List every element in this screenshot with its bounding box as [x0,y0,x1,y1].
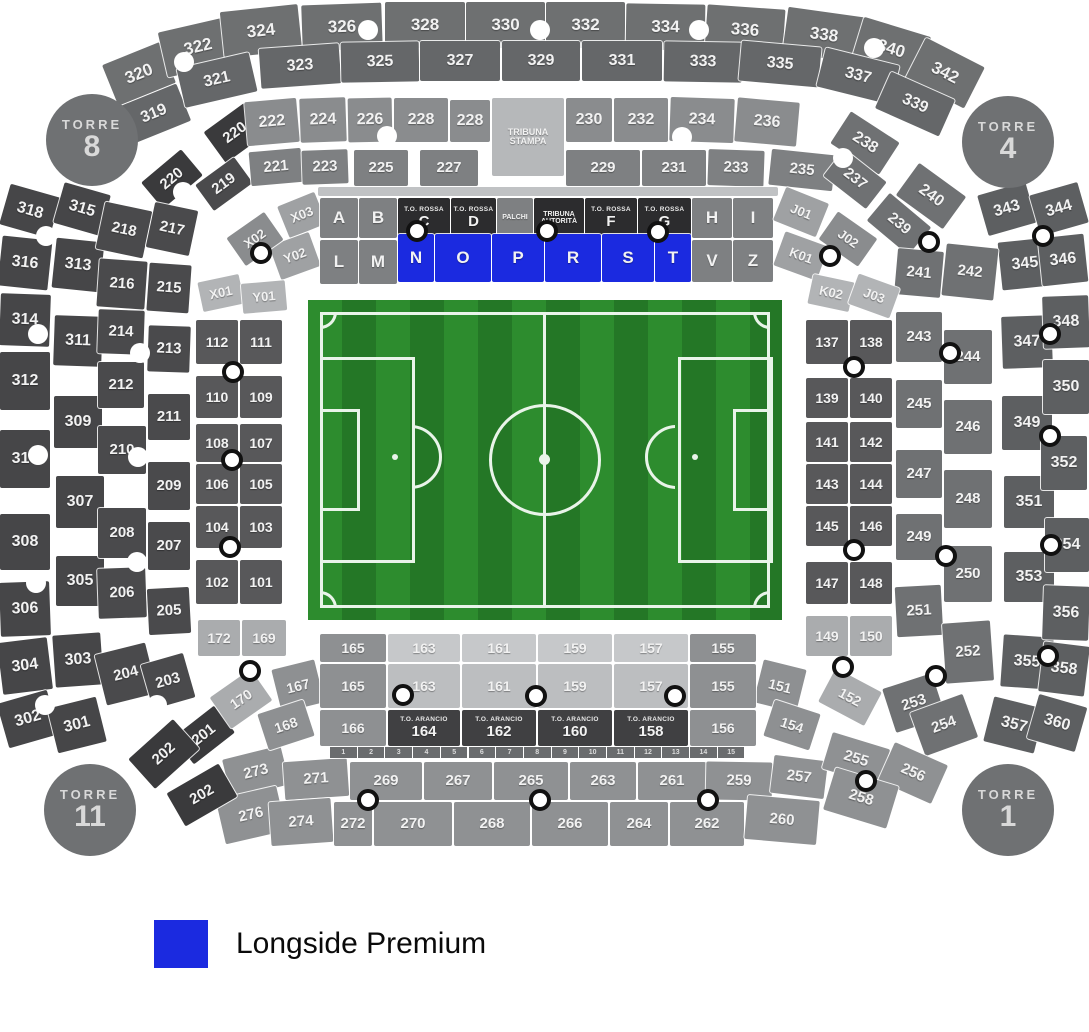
section-235[interactable]: 235 [768,149,835,191]
tower-8: TORRE8 [46,94,138,186]
section-label: A [333,209,345,226]
section-212[interactable]: 212 [98,362,144,408]
section-label: 250 [955,566,980,581]
tower-1: TORRE1 [962,764,1054,856]
section-166[interactable]: 166 [320,710,386,746]
section-label: 106 [205,477,228,491]
section-label: 101 [249,575,272,589]
section-label: 204 [112,664,140,685]
section-label: 240 [915,182,946,211]
section-261[interactable]: 261 [638,762,706,800]
section-159[interactable]: 159 [538,664,612,708]
section-label: 247 [906,466,931,481]
section-label: 232 [628,112,655,128]
section-111[interactable]: 111 [240,320,282,364]
stadium-seating-map: 3203223243263283303323343363383403423193… [0,0,1089,1032]
section-label: 350 [1053,379,1080,395]
section-label: 216 [109,275,135,292]
section-label: 238 [849,129,880,157]
section-roof-bar [318,187,778,196]
gate-dot-ringed [697,789,719,811]
section-label: F [606,214,615,229]
section-267[interactable]: 267 [424,762,492,800]
section-335[interactable]: 335 [738,41,821,88]
section-label: 137 [815,335,838,349]
section-139[interactable]: 139 [806,378,848,418]
section-j03[interactable]: J03 [848,273,900,318]
section-label: 108 [205,436,228,450]
section-101[interactable]: 101 [240,560,282,604]
section-y01[interactable]: Y01 [241,280,287,314]
section-label: 254 [930,714,959,737]
section-label: 148 [859,576,882,590]
section-157[interactable]: 157 [614,634,688,662]
section-label: 346 [1049,250,1077,269]
section-label: 234 [688,111,715,128]
section-a[interactable]: A [320,198,358,238]
section-label: 313 [64,255,92,274]
section-x01[interactable]: X01 [197,274,244,312]
section-232[interactable]: 232 [614,98,668,142]
legend-swatch-longside-premium [154,920,208,968]
section-label: 224 [309,111,336,128]
section-label: 154 [779,715,806,736]
gate-strip-cell: 2 [358,747,385,758]
section-229[interactable]: 229 [566,150,640,186]
section-i[interactable]: I [733,198,773,238]
section-label: 159 [563,641,586,655]
section-label: 233 [723,160,749,176]
section-164[interactable]: T.O. ARANCIO164 [388,710,460,746]
section-label: 329 [528,53,555,69]
section-102[interactable]: 102 [196,560,238,604]
section-109[interactable]: 109 [240,376,282,418]
section-304[interactable]: 304 [0,637,53,695]
section-159[interactable]: 159 [538,634,612,662]
section-label: N [410,249,422,266]
section-label: D [468,214,479,229]
section-label: 271 [303,770,329,787]
section-label: O [456,249,469,266]
section-158[interactable]: T.O. ARANCIO158 [614,710,688,746]
section-263[interactable]: 263 [570,762,636,800]
gate-dot-ringed [918,231,940,253]
section-p[interactable]: P [492,234,544,282]
section-163[interactable]: 163 [388,634,460,662]
gate-dot [26,573,46,593]
section-211[interactable]: 211 [148,394,190,440]
section-label: 163 [412,641,435,655]
section-356[interactable]: 356 [1042,585,1089,641]
section-209[interactable]: 209 [148,462,190,510]
section-144[interactable]: 144 [850,464,892,504]
section-260[interactable]: 260 [744,795,820,845]
section-label: 155 [711,679,734,693]
section-105[interactable]: 105 [240,464,282,504]
section-333[interactable]: 333 [664,41,743,82]
section-155[interactable]: 155 [690,664,756,708]
gate-strip-cell: 8 [524,747,551,758]
section-label: 205 [156,603,182,620]
section-label: 306 [11,600,38,617]
section-label: X03 [289,205,315,226]
section-label: 308 [12,534,39,550]
gate-dot-ringed [855,770,877,792]
section-label: 241 [906,264,932,281]
section-label: 251 [906,603,932,620]
section-216[interactable]: 216 [96,258,147,309]
section-label: 267 [445,773,470,788]
section-103[interactable]: 103 [240,506,282,548]
section-label: 242 [957,263,983,281]
section-label: 336 [730,20,760,39]
section-225[interactable]: 225 [354,150,408,186]
section-343[interactable]: 343 [977,182,1037,236]
section-k02[interactable]: K02 [807,274,854,312]
section-251[interactable]: 251 [895,585,944,637]
section-label: 206 [109,585,135,601]
section-label: 319 [139,101,170,126]
section-268[interactable]: 268 [454,802,530,846]
section-label: Y01 [252,289,276,304]
section-label: 264 [626,816,651,831]
section-label: 223 [312,159,338,175]
gate-dot [147,695,167,715]
section-label: 226 [357,112,384,129]
section-323[interactable]: 323 [259,43,342,88]
section-label: 168 [273,715,300,736]
section-label: 214 [108,324,134,340]
section-228[interactable]: 228 [394,98,448,142]
section-205[interactable]: 205 [147,587,191,635]
section-label: 203 [154,670,182,692]
tower-11: TORRE11 [44,764,136,856]
section-107[interactable]: 107 [240,424,282,462]
section-221[interactable]: 221 [249,148,304,186]
section-label: 219 [209,170,238,197]
section-label: 227 [436,160,461,175]
section-152[interactable]: 152 [818,668,882,726]
section-label: 157 [639,679,662,693]
section-label: 156 [711,721,734,735]
section-label: 235 [789,161,815,179]
section-label: 212 [108,377,133,392]
section-271[interactable]: 271 [283,758,349,800]
section-220[interactable]: 220 [141,149,203,208]
section-308[interactable]: 308 [0,514,50,570]
section-label: 357 [999,714,1029,736]
section-label: PALCHI [502,214,528,221]
section-label: 333 [690,54,717,71]
section-label: 245 [906,396,931,411]
section-label: H [706,209,718,226]
section-label: 266 [557,816,582,831]
section-label: 262 [694,816,719,831]
section-325[interactable]: 325 [341,41,420,82]
section-label: 260 [769,811,795,828]
section-label: 164 [411,724,436,739]
section-156[interactable]: 156 [690,710,756,746]
section-label: TRIBUNA STAMPA [508,128,549,146]
section-label: 145 [815,519,838,533]
section-219[interactable]: 219 [195,157,253,211]
section-161[interactable]: 161 [462,664,536,708]
section-327[interactable]: 327 [420,41,500,81]
section-f[interactable]: T.O. ROSSAF [585,198,637,238]
section-label: 172 [207,631,230,645]
gate-dot [36,226,56,246]
section-d[interactable]: T.O. ROSSAD [451,198,496,238]
section-label: 252 [955,643,981,660]
section-217[interactable]: 217 [146,202,199,256]
section-label: 263 [590,773,615,788]
section-207[interactable]: 207 [148,522,190,570]
section-tribuna[interactable]: TRIBUNA STAMPA [492,98,564,176]
section-142[interactable]: 142 [850,422,892,462]
section-label: 144 [859,477,882,491]
section-155[interactable]: 155 [690,634,756,662]
section-o[interactable]: O [435,234,491,282]
section-160[interactable]: T.O. ARANCIO160 [538,710,612,746]
section-312[interactable]: 312 [0,352,50,410]
section-label: 343 [992,197,1022,220]
section-165[interactable]: 165 [320,634,386,662]
section-301[interactable]: 301 [47,697,107,754]
section-label: 152 [836,685,863,709]
section-245[interactable]: 245 [896,380,942,428]
section-b[interactable]: B [359,198,397,238]
section-label: 213 [156,341,182,357]
section-label: 342 [928,59,961,87]
section-label: 208 [109,525,134,540]
section-label: 339 [899,91,930,117]
gate-dot-ringed [939,342,961,364]
legend-label: Longside Premium [236,927,486,961]
section-label: 215 [156,279,182,296]
section-309[interactable]: 309 [54,396,102,448]
section-169[interactable]: 169 [242,620,286,656]
section-223[interactable]: 223 [301,149,348,185]
section-246[interactable]: 246 [944,400,992,454]
section-257[interactable]: 257 [770,755,828,799]
section-label: 141 [815,435,838,449]
section-215[interactable]: 215 [146,263,191,314]
section-label: K02 [818,284,844,302]
gate-dot [864,38,884,58]
section-label: 344 [1044,197,1074,220]
section-222[interactable]: 222 [244,98,300,146]
section-label: 352 [1051,455,1078,471]
section-label: 166 [341,721,364,735]
section-m[interactable]: M [359,240,397,284]
section-218[interactable]: 218 [96,202,153,259]
penalty-arc-left [412,425,446,489]
section-149[interactable]: 149 [806,616,848,656]
gate-strip-cell: 13 [662,747,689,758]
section-230[interactable]: 230 [566,98,612,142]
section-label: 360 [1042,711,1072,734]
section-label: 158 [638,724,663,739]
gate-dot-ringed [525,685,547,707]
section-231[interactable]: 231 [642,150,706,186]
section-147[interactable]: 147 [806,562,848,604]
section-112[interactable]: 112 [196,320,238,364]
section-label: 353 [1016,569,1043,585]
section-label: 274 [288,813,314,830]
section-161[interactable]: 161 [462,634,536,662]
section-329[interactable]: 329 [502,41,580,81]
section-168[interactable]: 168 [257,700,314,751]
section-z[interactable]: Z [733,240,773,282]
section-label: 337 [843,65,873,87]
section-label: 320 [123,61,156,88]
section-label: T [668,249,678,266]
tower-number: 1 [1000,801,1017,833]
section-331[interactable]: 331 [582,41,662,81]
section-label: 161 [487,641,510,655]
section-label: 331 [609,53,636,69]
section-label: 334 [651,18,680,36]
gate-dot-ringed [239,660,261,682]
section-311[interactable]: 311 [53,315,103,367]
section-label: 257 [786,768,813,786]
gate-dot-ringed [221,449,243,471]
section-label: 138 [859,335,882,349]
section-172[interactable]: 172 [198,620,240,656]
section-label: 228 [457,113,484,129]
gate-dot-ringed [357,789,379,811]
section-140[interactable]: 140 [850,378,892,418]
gate-dot-ringed [832,656,854,678]
section-213[interactable]: 213 [147,325,191,372]
section-145[interactable]: 145 [806,506,848,546]
section-label: 356 [1052,604,1079,621]
section-252[interactable]: 252 [942,620,994,683]
gate-dot [358,20,378,40]
section-j01[interactable]: J01 [773,187,829,238]
section-227[interactable]: 227 [420,150,478,186]
section-236[interactable]: 236 [734,97,800,146]
gate-dot [833,148,853,168]
section-label: 315 [67,197,97,220]
gate-dot-ringed [819,245,841,267]
gate-dot-ringed [536,220,558,242]
section-162[interactable]: T.O. ARANCIO162 [462,710,536,746]
section-141[interactable]: 141 [806,422,848,462]
section-270[interactable]: 270 [374,802,452,846]
tower-name: TORRE [62,118,122,131]
section-224[interactable]: 224 [299,97,347,143]
section-165[interactable]: 165 [320,664,386,708]
section-h[interactable]: H [692,198,732,238]
section-label: K01 [788,246,815,267]
section-s[interactable]: S [602,234,654,282]
section-label: 228 [408,112,435,128]
section-208[interactable]: 208 [98,508,146,558]
gate-dot-ringed [222,361,244,383]
gate-dot-ringed [219,536,241,558]
section-label: 150 [859,629,882,643]
section-350[interactable]: 350 [1043,360,1089,414]
section-label: 347 [1013,333,1040,350]
section-label: 209 [156,478,181,493]
section-274[interactable]: 274 [269,798,334,846]
section-label: I [751,209,756,226]
gate-dot-ringed [843,539,865,561]
section-label: Z [748,252,758,269]
section-l[interactable]: L [320,240,358,284]
section-label: 211 [157,409,181,424]
section-233[interactable]: 233 [707,149,764,187]
football-pitch [308,300,782,620]
section-241[interactable]: 241 [894,248,944,298]
section-label: 155 [711,641,734,655]
section-label: 147 [815,576,838,590]
gate-dot [689,20,709,40]
section-label: J01 [788,202,813,222]
section-label: 323 [286,57,314,75]
section-148[interactable]: 148 [850,562,892,604]
section-palchi[interactable]: PALCHI [497,198,533,238]
section-label: 312 [12,373,39,389]
section-label: 143 [815,477,838,491]
section-143[interactable]: 143 [806,464,848,504]
section-label: 103 [249,520,272,534]
section-label: 167 [285,676,311,695]
section-307[interactable]: 307 [56,476,104,528]
section-label: 160 [562,724,587,739]
section-154[interactable]: 154 [763,700,820,751]
legend: Longside Premium [154,920,486,968]
section-label: 229 [590,160,615,175]
gate-dot [128,447,148,467]
section-label: 328 [411,16,439,33]
section-228[interactable]: 228 [450,100,490,142]
section-label: 309 [65,414,92,430]
gate-dot [127,552,147,572]
gate-dot [672,127,692,147]
section-label: X01 [208,284,233,302]
section-label: 305 [67,573,94,589]
section-label: 325 [367,54,394,71]
section-label: 276 [237,805,265,826]
section-206[interactable]: 206 [97,567,147,619]
section-label: 311 [65,332,91,349]
section-247[interactable]: 247 [896,450,942,498]
section-label: 304 [11,656,39,675]
section-v[interactable]: V [692,240,732,282]
section-label: 149 [815,629,838,643]
section-label: 231 [661,160,686,175]
gate-strip-cell: 4 [413,747,440,758]
tower-name: TORRE [978,788,1038,801]
gate-dot [28,324,48,344]
section-label: B [372,209,384,226]
section-137[interactable]: 137 [806,320,848,364]
gate-strip-cell: 1 [330,747,357,758]
gate-dot [28,445,48,465]
section-242[interactable]: 242 [941,243,998,300]
section-243[interactable]: 243 [896,312,942,362]
section-264[interactable]: 264 [610,802,668,846]
gate-dot-ringed [1032,225,1054,247]
section-label: 237 [840,165,869,192]
section-label: J02 [835,227,860,250]
gate-dot-ringed [1037,645,1059,667]
section-150[interactable]: 150 [850,616,892,656]
section-248[interactable]: 248 [944,470,992,528]
section-r[interactable]: R [545,234,601,282]
